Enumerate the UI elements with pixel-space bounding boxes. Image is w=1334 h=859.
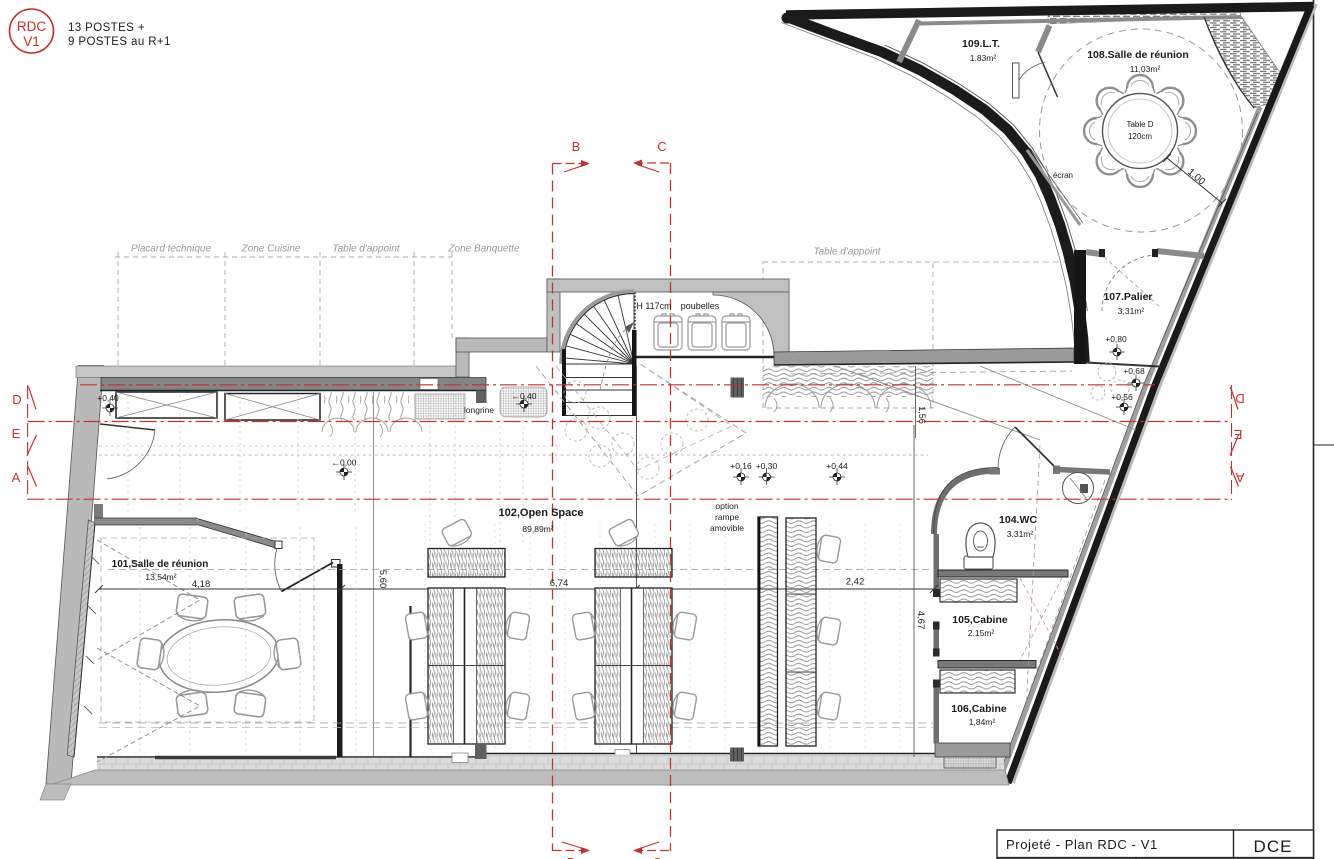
svg-text:Projeté - Plan RDC - V1: Projeté - Plan RDC - V1 <box>1006 837 1158 852</box>
svg-text:109.L.T.: 109.L.T. <box>962 38 1000 50</box>
svg-text:longrine: longrine <box>464 405 495 415</box>
svg-text:H 117cm: H 117cm <box>636 301 671 311</box>
svg-text:poubelles: poubelles <box>681 301 720 311</box>
svg-text:+0,40: +0,40 <box>97 393 119 403</box>
svg-text:D: D <box>12 392 21 407</box>
svg-text:102,Open Space: 102,Open Space <box>499 507 584 519</box>
svg-text:Table D: Table D <box>1126 120 1153 129</box>
svg-text:13 POSTES +: 13 POSTES + <box>68 22 145 34</box>
svg-text:13,54m²: 13,54m² <box>145 572 176 582</box>
svg-text:option: option <box>715 501 738 511</box>
svg-text:B: B <box>572 139 581 154</box>
svg-text:C: C <box>657 139 666 154</box>
svg-text:5,60: 5,60 <box>377 570 388 589</box>
svg-text:Zone Cuisine: Zone Cuisine <box>241 244 301 255</box>
svg-text:3.31m²: 3.31m² <box>1007 529 1034 539</box>
svg-text:RDC: RDC <box>17 19 46 34</box>
svg-text:101,Salle de réunion: 101,Salle de réunion <box>112 559 209 570</box>
svg-text:2.15m²: 2.15m² <box>968 628 995 638</box>
svg-text:rampe: rampe <box>715 512 739 522</box>
svg-text:108.Salle de réunion: 108.Salle de réunion <box>1087 49 1189 61</box>
svg-text:+0,68: +0,68 <box>1123 366 1145 376</box>
svg-text:DCE: DCE <box>1254 837 1293 856</box>
svg-text:120cm: 120cm <box>1128 132 1152 141</box>
svg-text:9 POSTES au R+1: 9 POSTES au R+1 <box>68 36 171 48</box>
svg-text:A: A <box>12 470 21 485</box>
svg-text:11,03m²: 11,03m² <box>1130 64 1161 74</box>
svg-text:V1: V1 <box>23 34 40 49</box>
svg-text:3,31m²: 3,31m² <box>1118 306 1145 316</box>
svg-text:Table d'appoint: Table d'appoint <box>813 247 881 258</box>
svg-text:écran: écran <box>1053 171 1073 180</box>
svg-text:1,84m²: 1,84m² <box>969 717 996 727</box>
svg-text:89,89m²: 89,89m² <box>522 524 553 534</box>
svg-text:C: C <box>652 855 661 859</box>
svg-text:107.Palier: 107.Palier <box>1103 291 1152 303</box>
svg-text:E: E <box>12 426 21 441</box>
svg-text:2,42: 2,42 <box>846 577 865 588</box>
svg-text:B: B <box>567 855 576 859</box>
svg-text:amovible: amovible <box>710 523 744 533</box>
svg-text:E: E <box>1233 427 1242 442</box>
svg-text:+0,56: +0,56 <box>1111 392 1133 402</box>
svg-text:A: A <box>1235 470 1244 485</box>
svg-text:104.WC: 104.WC <box>999 514 1037 526</box>
svg-text:1.83m²: 1.83m² <box>970 53 997 63</box>
svg-text:Zone Banquette: Zone Banquette <box>447 244 520 255</box>
svg-text:D: D <box>1235 391 1244 406</box>
svg-text:1,56: 1,56 <box>917 406 927 424</box>
svg-text:106,Cabine: 106,Cabine <box>951 703 1007 715</box>
svg-text:105,Cabine: 105,Cabine <box>952 614 1008 626</box>
svg-text:6,74: 6,74 <box>550 578 569 589</box>
svg-text:+0,80: +0,80 <box>1105 334 1127 344</box>
svg-text:4,67: 4,67 <box>915 611 926 630</box>
svg-text:Table d'appoint: Table d'appoint <box>332 244 400 255</box>
svg-text:4,18: 4,18 <box>192 579 211 590</box>
svg-text:Placard technique: Placard technique <box>131 244 211 255</box>
